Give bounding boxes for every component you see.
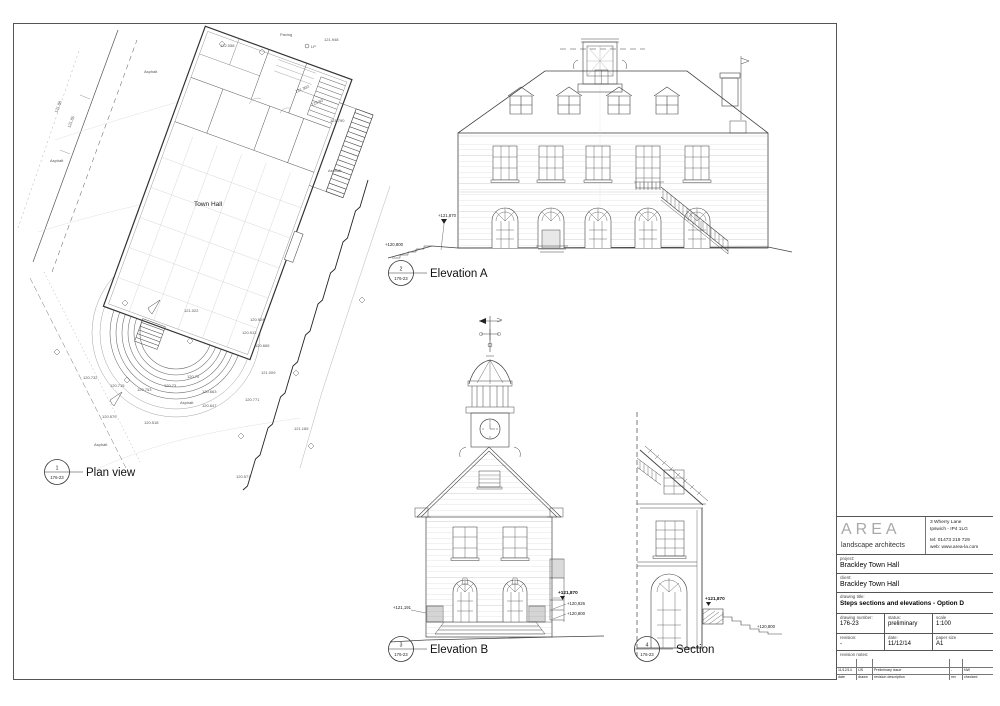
level-annotation: +120,800 — [385, 242, 404, 247]
view-title: Section — [676, 644, 714, 656]
company-address-line2: Ipswich - IP4 1LG — [930, 527, 993, 534]
revision-checked: NW — [963, 668, 993, 674]
drawing-title-label: drawing title: — [840, 594, 990, 599]
plan-annotation: 121.022 — [184, 308, 199, 313]
company-tel: tel: 01473 219 729 — [930, 538, 993, 545]
revision-description: Preliminary issue — [873, 668, 950, 674]
plan-annotation: Paving — [280, 32, 292, 37]
revision-header-date: date — [837, 675, 857, 681]
view-number: 2 — [400, 267, 403, 273]
arched-windows — [492, 208, 710, 252]
chimney — [722, 78, 738, 106]
company-tagline: landscape architects — [841, 542, 921, 549]
plan-view-drawing: Town Hall Paving 121.948 122.058 Asphalt… — [18, 26, 390, 490]
title-block: AREA landscape architects 3 Wherry Lane … — [837, 516, 993, 680]
plan-annotation: Asphalt — [94, 442, 108, 447]
plan-annotation: 120.715 — [110, 383, 125, 388]
view-title: Elevation B — [430, 644, 489, 656]
view-sheet-ref: 176-23 — [394, 276, 408, 281]
status-value: preliminary — [888, 621, 929, 627]
plan-annotation: 120.70 — [187, 374, 200, 379]
plan-annotation: Asphalt — [50, 158, 64, 163]
level-annotation: +121,191 — [393, 605, 412, 610]
view-sheet-ref: 176-23 — [640, 652, 654, 657]
cupola — [560, 39, 645, 92]
level-annotation: +121,870 — [705, 596, 725, 601]
plan-annotation: LP — [311, 44, 316, 49]
view-title: Plan view — [86, 467, 136, 479]
plan-annotation: 120.771 — [245, 397, 260, 402]
title-block-header: AREA landscape architects 3 Wherry Lane … — [837, 517, 993, 555]
scale-value: 1:100 — [936, 621, 990, 627]
revision-table-row: 11/12/14 IJS Preliminary issue - NW — [837, 667, 993, 674]
client-value: Brackley Town Hall — [840, 581, 990, 588]
plan-annotation: Asphalt — [328, 168, 342, 173]
plan-annotation: 120.73 — [164, 383, 177, 388]
revision-drawn: IJS — [857, 668, 873, 674]
title-block-column: AREA landscape architects 3 Wherry Lane … — [836, 23, 993, 680]
plan-annotation: Asphalt — [144, 69, 158, 74]
plan-annotation: 120.647 — [202, 403, 217, 408]
plan-annotation: 120.665 — [255, 343, 270, 348]
revision-rev: - — [950, 668, 963, 674]
plan-annotation: 120.753 — [137, 387, 152, 392]
plan-annotation: 120.663 — [202, 389, 217, 394]
company-contact: 3 Wherry Lane Ipswich - IP4 1LG tel: 014… — [925, 517, 993, 554]
front-steps — [435, 622, 545, 634]
company-web: web: www.area-la.com — [930, 545, 993, 552]
drawing-number-label: drawing number: — [840, 615, 881, 620]
revision-date: 11/12/14 — [837, 668, 857, 674]
plan-annotation: 121.165 — [294, 426, 309, 431]
lantern-cupola — [466, 356, 514, 413]
drawing-title-value: Steps sections and elevations - Option D — [840, 600, 990, 607]
drawing-sheet: Town Hall Paving 121.948 122.058 Asphalt… — [0, 0, 1000, 706]
level-annotation: +121,870 — [438, 213, 457, 218]
company-address-line1: 3 Wherry Lane — [930, 520, 993, 527]
revision-header-drawn: drawn — [857, 675, 873, 681]
date-value: 11/12/14 — [888, 641, 929, 647]
stair-balustrade — [637, 458, 661, 485]
arched-windows — [453, 578, 527, 622]
flag-pole — [741, 56, 749, 120]
project-label: project: — [840, 556, 990, 561]
plan-annotation: 121.88 — [53, 99, 63, 113]
plan-annotation: Asphalt — [180, 400, 194, 405]
revision-header-rev: rev — [950, 675, 963, 681]
elevation-b-drawing: +121,870 +120,926 +120,800 +121,191 — [390, 316, 604, 642]
revision-header-description: revision description — [873, 675, 950, 681]
plan-annotation: 120.732 — [83, 375, 98, 380]
drawing-number-value: 176-23 — [840, 621, 881, 627]
view-label-elevation-a: 2 176-23 Elevation A — [389, 261, 488, 286]
revision-notes-label: revision notes: — [840, 652, 990, 657]
plan-annotation: 121.790 — [330, 118, 345, 123]
plan-annotation: 121.85 — [66, 114, 76, 128]
status-label: status: — [888, 615, 929, 620]
view-sheet-ref: 176-23 — [50, 475, 64, 480]
clock-tower — [460, 413, 521, 457]
view-number: 1 — [56, 466, 59, 472]
project-field: project: Brackley Town Hall — [837, 555, 993, 574]
plan-annotation: 120.579 — [102, 414, 117, 419]
plan-annotation: 120.912 — [242, 330, 257, 335]
plan-annotation: 120.518 — [144, 420, 159, 425]
plan-annotation: 121.948 — [324, 37, 339, 42]
plan-annotation: 120.924 — [250, 317, 265, 322]
plan-annotation: 122.058 — [220, 43, 235, 48]
paper-size-label: paper size — [936, 635, 990, 640]
view-label-plan: 1 176-23 Plan view — [45, 460, 136, 485]
drawing-title-field: drawing title: Steps sections and elevat… — [837, 593, 993, 614]
view-label-elevation-b: 3 176-23 Elevation B — [389, 637, 489, 662]
plan-building-label: Town Hall — [194, 201, 223, 208]
landing-and-steps — [703, 609, 782, 634]
building-footprint — [103, 26, 382, 370]
section-drawing: +121,870 +120,800 — [637, 412, 782, 658]
company-logo: AREA — [841, 520, 921, 539]
level-annotation: +120,926 — [567, 601, 586, 606]
project-value: Brackley Town Hall — [840, 562, 990, 569]
revision-table: 11/12/14 IJS Preliminary issue - NW date… — [837, 667, 993, 680]
date-label: date: — [888, 635, 929, 640]
revision-label: revision: — [840, 635, 881, 640]
level-annotation: +121,870 — [558, 590, 578, 595]
client-field: client: Brackley Town Hall — [837, 574, 993, 593]
view-number: 3 — [400, 643, 403, 649]
elevation-a-drawing: +121,870 +120,800 — [385, 39, 792, 258]
plan-annotation: 120.571 — [236, 474, 251, 479]
revision-table-header: date drawn revision description rev chec… — [837, 674, 993, 681]
view-title: Elevation A — [430, 268, 488, 280]
scale-label: scale — [936, 615, 990, 620]
client-label: client: — [840, 575, 990, 580]
plan-annotation: 121.009 — [261, 370, 276, 375]
revision-row: revision: - date: 11/12/14 paper size A1 — [837, 634, 993, 651]
level-annotation: +120,800 — [757, 624, 776, 629]
paper-size-value: A1 — [936, 641, 990, 647]
dormer-windows — [508, 87, 680, 114]
revision-header-checked: checked — [963, 675, 993, 681]
view-sheet-ref: 176-23 — [394, 652, 408, 657]
revision-value: - — [840, 641, 881, 647]
level-annotation: +120,800 — [567, 611, 586, 616]
upper-windows — [451, 527, 529, 561]
weathervane — [479, 316, 502, 352]
revision-notes: revision notes: 11/12/14 IJS Preliminary… — [837, 651, 993, 680]
upper-windows — [491, 146, 711, 188]
drawing-number-row: drawing number: 176-23 status: prelimina… — [837, 614, 993, 634]
view-number: 4 — [646, 643, 649, 649]
